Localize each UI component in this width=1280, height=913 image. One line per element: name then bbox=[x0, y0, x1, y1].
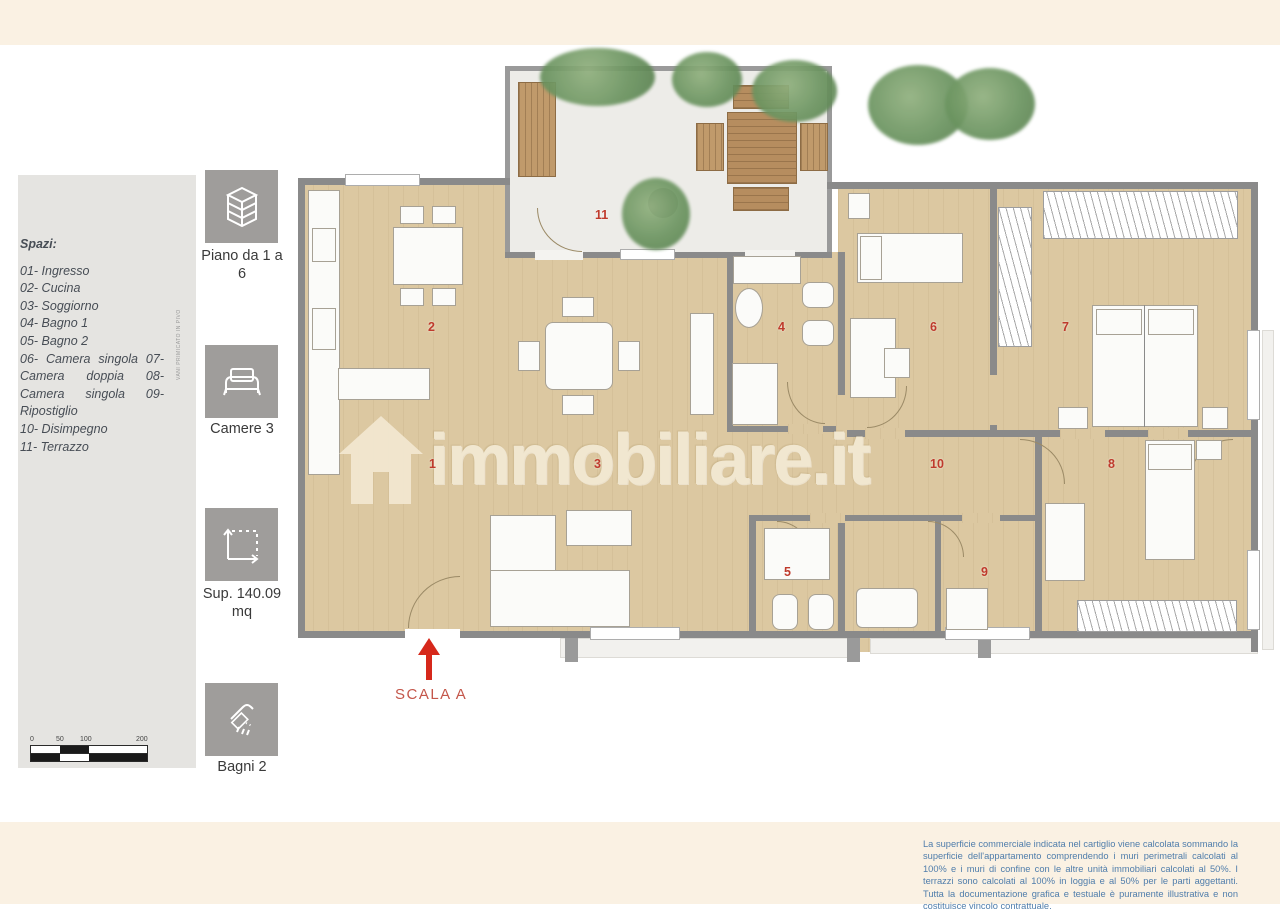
pillar bbox=[847, 638, 860, 662]
coffee-table bbox=[566, 510, 632, 546]
surface-label: Sup. 140.09 mq bbox=[198, 585, 286, 621]
room-number: 6 bbox=[930, 320, 937, 334]
scale-label: 0 bbox=[30, 736, 34, 743]
scale-segment bbox=[31, 754, 60, 761]
wall bbox=[838, 515, 845, 631]
chair bbox=[400, 288, 424, 306]
window bbox=[590, 627, 680, 640]
wardrobe bbox=[1077, 600, 1237, 632]
window bbox=[345, 174, 420, 186]
sink-console bbox=[856, 588, 918, 628]
scale-label: 100 bbox=[80, 736, 92, 743]
terrace-bench bbox=[518, 82, 556, 177]
scale-label: 200 bbox=[136, 736, 148, 743]
room-number: 4 bbox=[778, 320, 785, 334]
drawing-credit-vertical-text: VANI PRIMICATO IN PIVO bbox=[176, 288, 188, 380]
balcony-sill bbox=[560, 638, 860, 658]
wall bbox=[749, 515, 756, 635]
sofa bbox=[490, 570, 630, 627]
scale-segment bbox=[31, 746, 60, 753]
wall bbox=[846, 430, 1258, 437]
door-gap bbox=[1148, 428, 1188, 439]
plant bbox=[540, 48, 655, 106]
chair bbox=[400, 206, 424, 224]
door-gap bbox=[1060, 428, 1105, 439]
room-number: 3 bbox=[594, 457, 601, 471]
scale-bar-labels: 0 50 100 200 bbox=[30, 736, 150, 745]
bathroom-vanity bbox=[733, 256, 801, 284]
legend-item: 06- Camera singola 07- Camera doppia 08-… bbox=[20, 351, 164, 421]
door-gap bbox=[865, 428, 905, 439]
legend-item: 04- Bagno 1 bbox=[20, 315, 164, 333]
room-number: 7 bbox=[1062, 320, 1069, 334]
floor-tile bbox=[205, 170, 278, 243]
room-number: 1 bbox=[429, 457, 436, 471]
legend-item: 11- Terrazzo bbox=[20, 439, 164, 457]
legend-item: 01- Ingresso bbox=[20, 263, 164, 281]
scale-bar-row bbox=[30, 745, 148, 753]
chair bbox=[562, 297, 594, 317]
pillow bbox=[1148, 309, 1194, 335]
scale-segment bbox=[60, 754, 89, 761]
room-number: 8 bbox=[1108, 457, 1115, 471]
pillow bbox=[1096, 309, 1142, 335]
scale-bar: 0 50 100 200 bbox=[30, 736, 150, 762]
shower bbox=[764, 528, 830, 580]
legend-item: 10- Disimpegno bbox=[20, 421, 164, 439]
door-gap bbox=[962, 513, 1000, 523]
toilet bbox=[802, 282, 834, 308]
bathrooms-label: Bagni 2 bbox=[198, 758, 286, 776]
legend-text: Spazi: 01- Ingresso 02- Cucina 03- Soggi… bbox=[20, 236, 164, 456]
plant bbox=[622, 178, 690, 250]
scale-bar-row bbox=[30, 753, 148, 762]
balcony-sill bbox=[870, 638, 1258, 654]
desk-chair bbox=[884, 348, 910, 378]
room-number: 2 bbox=[428, 320, 435, 334]
nightstand bbox=[848, 193, 870, 219]
legend-item: 03- Soggiorno bbox=[20, 298, 164, 316]
terrace-chair bbox=[696, 123, 724, 171]
legend-title: Spazi: bbox=[20, 236, 164, 254]
nightstand bbox=[1202, 407, 1228, 429]
legend-item: 02- Cucina bbox=[20, 280, 164, 298]
bedrooms-label: Camere 3 bbox=[198, 420, 286, 438]
area-icon bbox=[219, 522, 265, 568]
kitchen-sink bbox=[312, 228, 336, 262]
wardrobe bbox=[1043, 191, 1238, 239]
pillar bbox=[978, 638, 991, 658]
chair bbox=[432, 288, 456, 306]
window bbox=[1247, 550, 1260, 630]
scale-segment bbox=[60, 746, 89, 753]
kitchen-stove bbox=[312, 308, 336, 350]
watermark-logo: immobiliare.it bbox=[335, 412, 869, 508]
building-icon bbox=[219, 184, 265, 230]
door-gap bbox=[988, 375, 999, 425]
chair bbox=[432, 206, 456, 224]
plant bbox=[945, 68, 1035, 140]
stair-label: SCALA A bbox=[395, 686, 467, 703]
house-icon bbox=[335, 412, 427, 508]
chair bbox=[518, 341, 540, 371]
sink bbox=[735, 288, 763, 328]
pillow bbox=[860, 236, 882, 280]
room-number: 11 bbox=[595, 208, 608, 222]
nightstand bbox=[1058, 407, 1088, 429]
shower-icon bbox=[219, 697, 265, 743]
wall bbox=[827, 182, 1258, 189]
kitchen-table bbox=[393, 227, 463, 285]
washing-machine bbox=[946, 588, 988, 630]
dining-table bbox=[545, 322, 613, 390]
pillow bbox=[1148, 444, 1192, 470]
plant bbox=[672, 52, 742, 107]
legend-item: 05- Bagno 2 bbox=[20, 333, 164, 351]
wall bbox=[298, 178, 305, 638]
scale-label: 50 bbox=[56, 736, 64, 743]
floor-plan: immobiliare.it 1 2 3 4 5 6 7 8 9 10 11 S… bbox=[290, 60, 1265, 720]
toilet bbox=[772, 594, 798, 630]
nightstand bbox=[1196, 440, 1222, 460]
window bbox=[1247, 330, 1260, 420]
kitchen-peninsula bbox=[338, 368, 430, 400]
floor-label: Piano da 1 a 6 bbox=[198, 247, 286, 283]
bed-center-line bbox=[1144, 305, 1145, 427]
room-number: 10 bbox=[930, 457, 944, 471]
entrance-arrow bbox=[418, 638, 440, 682]
surface-tile bbox=[205, 508, 278, 581]
desk bbox=[1045, 503, 1085, 581]
wardrobe bbox=[998, 207, 1032, 347]
bathrooms-tile bbox=[205, 683, 278, 756]
chair bbox=[618, 341, 640, 371]
arrow-shaft bbox=[426, 652, 432, 680]
disclaimer-text: La superficie commerciale indicata nel c… bbox=[923, 838, 1238, 913]
bed-icon bbox=[219, 359, 265, 405]
terrace-table bbox=[727, 112, 797, 184]
scale-segment bbox=[89, 754, 147, 761]
terrace-chair bbox=[800, 123, 828, 171]
room-number: 5 bbox=[784, 565, 791, 579]
bidet bbox=[808, 594, 834, 630]
window bbox=[620, 249, 675, 260]
room-number: 9 bbox=[981, 565, 988, 579]
bidet bbox=[802, 320, 834, 346]
plant bbox=[752, 60, 837, 122]
door-gap bbox=[810, 513, 845, 523]
watermark-text: immobiliare.it bbox=[429, 419, 869, 501]
hall-wardrobe bbox=[690, 313, 714, 415]
pillar bbox=[565, 638, 578, 662]
terrace-chair bbox=[733, 187, 789, 211]
top-margin-band bbox=[0, 0, 1280, 45]
scale-segment bbox=[89, 746, 147, 753]
side-sill bbox=[1262, 330, 1274, 650]
bedrooms-tile bbox=[205, 345, 278, 418]
